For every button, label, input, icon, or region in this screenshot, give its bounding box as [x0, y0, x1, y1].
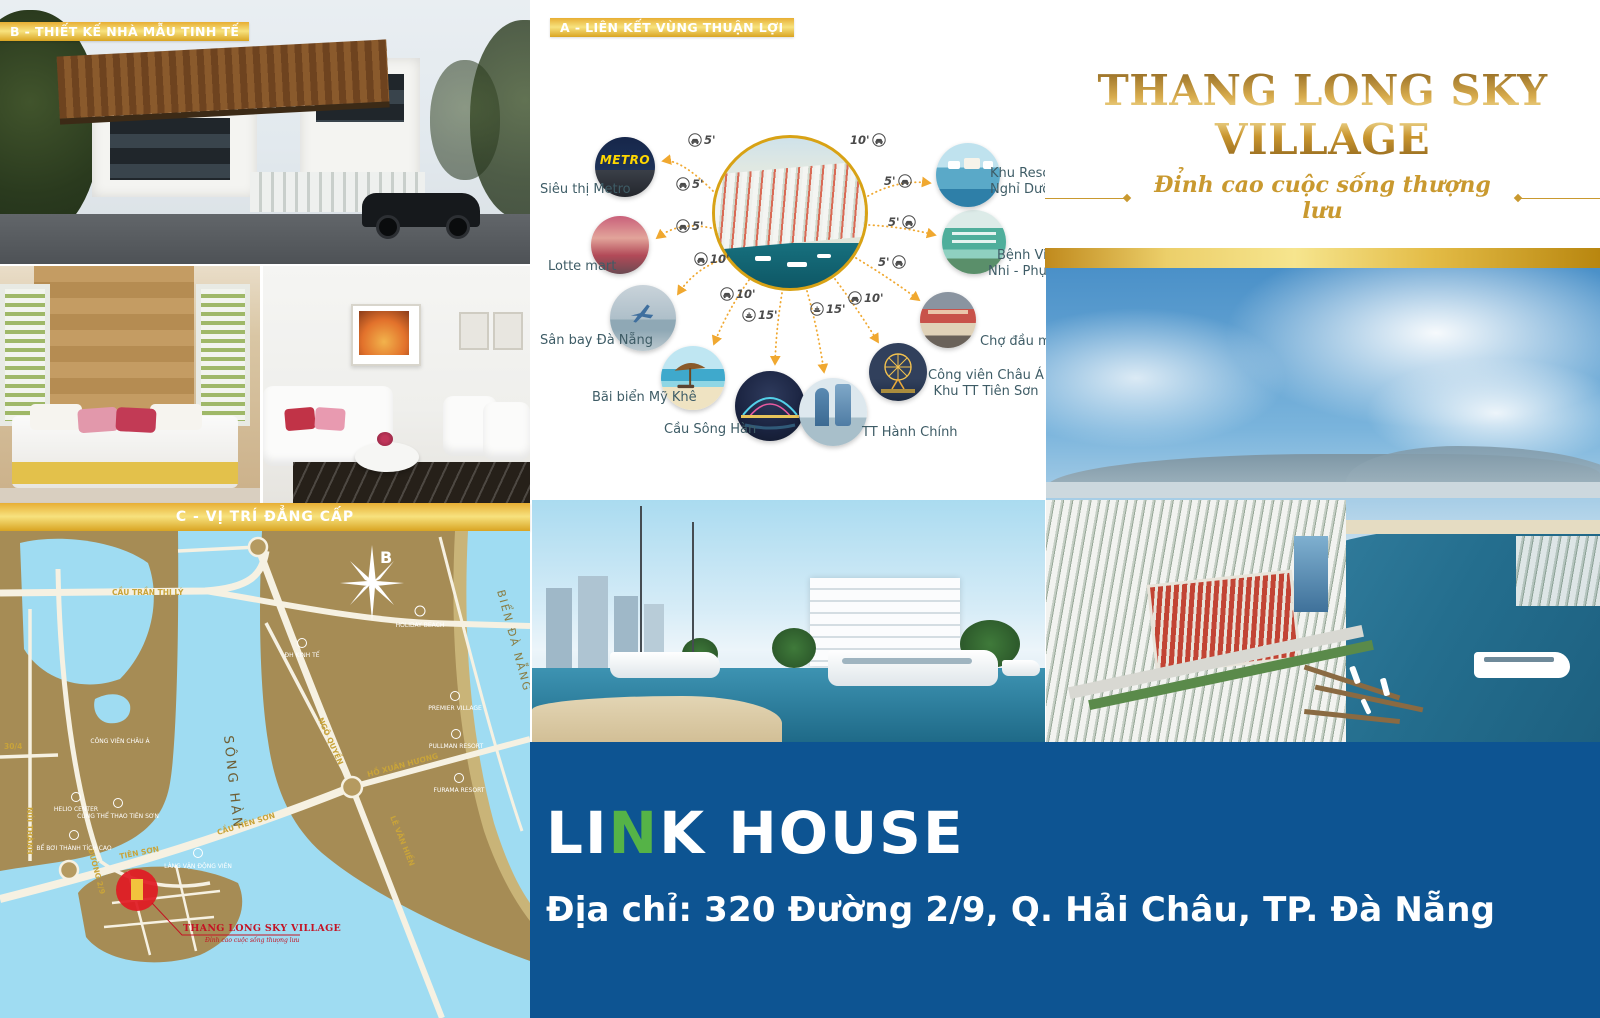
car-icon — [902, 215, 916, 229]
pillow-white-2 — [150, 404, 202, 430]
rug — [293, 462, 530, 503]
map-label-30-4: 30/4 — [4, 742, 22, 751]
dest-metro-label: Siêu thị Metro — [540, 182, 631, 198]
right-bank-rows — [1516, 536, 1600, 606]
section-b-label: B - THIẾT KẾ NHÀ MẪU TINH TẾ — [10, 24, 239, 39]
dest-bridge-label: Cầu Sông Hàn — [664, 422, 756, 438]
beach-sand — [532, 696, 782, 742]
time-bridge-boat: 15' — [742, 308, 778, 322]
time-hospital: 5' — [884, 174, 912, 188]
small-boat — [1002, 660, 1040, 676]
pillow-white — [30, 404, 82, 430]
project-title: THANG LONG SKY VILLAGE — [1045, 66, 1600, 164]
project-marker-tagline: Đỉnh cao cuộc sống thượng lưu — [204, 937, 299, 944]
dest-airport-label: Sân bay Đà Nẵng — [540, 333, 653, 349]
bedroom-photo — [0, 266, 260, 503]
car-icon — [676, 177, 690, 191]
compass-north-label: B — [380, 548, 392, 567]
location-map: B BIỂN ĐÀ NẴNG SÔNG HÀN CẦU TRẦN THỊ LÝ … — [0, 531, 530, 1018]
wall-art — [351, 304, 421, 366]
dest-asia-park-circle — [869, 343, 927, 401]
car-silhouette — [362, 193, 480, 227]
car-icon — [676, 219, 690, 233]
far-city-strip — [1046, 482, 1600, 498]
map-poi-pullman-resort: PULLMAN RESORT — [429, 743, 484, 750]
bed-throw — [12, 462, 238, 484]
car-icon — [694, 252, 708, 266]
time-admin-boat: 15' — [810, 302, 846, 316]
time-beach: 10' — [694, 252, 730, 266]
metro-sign-text: METRO — [595, 153, 655, 167]
dest-market-circle — [920, 292, 976, 348]
section-b-banner: B - THIẾT KẾ NHÀ MẪU TINH TẾ — [0, 22, 249, 41]
boat-icon — [742, 308, 756, 322]
sail-mast — [640, 506, 642, 662]
cruise-ship — [1474, 652, 1570, 678]
glass-tower — [1294, 536, 1328, 612]
car-icon — [848, 291, 862, 305]
dest-admin-label: TT Hành Chính — [862, 425, 958, 441]
time-market: 5' — [888, 215, 916, 229]
dest-admin-center-circle — [799, 378, 867, 446]
coffee-table — [355, 442, 419, 472]
time-asia-park: 5' — [878, 255, 906, 269]
aerial-masterplan-photo — [1046, 268, 1600, 742]
bedroom-floor — [0, 488, 260, 503]
hub-housing-rows — [712, 160, 868, 251]
dest-lotte-label: Lotte mart — [548, 259, 616, 275]
boat-icon — [810, 302, 824, 316]
time-resort: 10' — [850, 133, 886, 147]
brochure-page: B - THIẾT KẾ NHÀ MẪU TINH TẾ C - VỊ TRÍ … — [0, 0, 1600, 1018]
tree-left — [0, 10, 100, 240]
living-room-photo — [263, 266, 530, 503]
project-marker-label: THANG LONG SKY VILLAGE — [183, 923, 341, 934]
armchair-2 — [483, 402, 530, 460]
map-label-tran-thi-ly: CẦU TRẦN THỊ LÝ — [112, 587, 184, 597]
map-poi-dh-kinh-te: ĐH KINH TẾ — [284, 651, 319, 659]
time-lotte: 5' — [676, 177, 704, 191]
section-c-banner: C - VỊ TRÍ ĐẲNG CẤP — [0, 503, 530, 531]
city-tower — [546, 588, 572, 668]
car-icon — [720, 287, 734, 301]
section-a-label: A - LIÊN KẾT VÙNG THUẬN LỢI — [560, 20, 784, 35]
yacht-hull — [828, 650, 998, 686]
cushion-red — [284, 407, 316, 432]
house-glass — [110, 118, 230, 180]
hub-aerial-circle — [712, 135, 868, 291]
project-tagline: Đỉnh cao cuộc sống thượng lưu — [1045, 172, 1600, 224]
connectivity-diagram: A - LIÊN KẾT VÙNG THUẬN LỢI METRO — [530, 0, 1075, 500]
exterior-house-photo: B - THIẾT KẾ NHÀ MẪU TINH TẾ — [0, 0, 530, 264]
tagline-rule-right — [1517, 198, 1600, 199]
time-bridge-car: 10' — [720, 287, 756, 301]
time-metro: 5' — [688, 133, 716, 147]
waterfront-photo — [532, 500, 1045, 742]
map-poi-helio-center: HELIO CENTER — [54, 806, 98, 813]
map-poi-cong-vien-chau-a: CÔNG VIÊN CHÂU Á — [90, 737, 150, 745]
footer: LINK HOUSE Địa chỉ: 320 Đường 2/9, Q. Hả… — [530, 742, 1600, 1018]
wall-art-small-2 — [493, 312, 523, 350]
pillow-red — [115, 407, 156, 433]
bedroom-window-right — [196, 284, 250, 426]
flower-vase — [377, 432, 393, 446]
city-tower — [578, 576, 608, 668]
ferris-wheel-icon — [869, 343, 927, 401]
car-icon — [688, 133, 702, 147]
tagline-rule-left — [1045, 198, 1128, 199]
plane-icon — [622, 301, 662, 327]
logo-green-n: N — [609, 799, 660, 867]
map-poi-be-boi: BỂ BƠI THÀNH TÍCH CAO — [36, 844, 112, 852]
section-a-banner: A - LIÊN KẾT VÙNG THUẬN LỢI — [550, 18, 794, 37]
car-icon — [892, 255, 906, 269]
car-icon — [872, 133, 886, 147]
section-c-label: C - VỊ TRÍ ĐẲNG CẤP — [176, 509, 354, 525]
dest-beach-label: Bãi biển Mỹ Khê — [592, 390, 697, 406]
map-poi-lang-vdv: LÀNG VẬN ĐỘNG VIÊN — [164, 862, 232, 870]
map-poi-premier-village: PREMIER VILLAGE — [428, 705, 482, 712]
tree-mid — [430, 60, 500, 180]
pillow-pink — [77, 407, 119, 434]
brand-block: THANG LONG SKY VILLAGE Đỉnh cao cuộc sốn… — [1045, 0, 1600, 248]
map-label-nui-thanh: NÚI THÀNH — [25, 807, 34, 855]
linkhouse-logo: LINK HOUSE — [546, 804, 965, 862]
car-icon — [898, 174, 912, 188]
dest-asia-park-label: Công viên Châu Á Khu TT Tiên Sơn — [926, 368, 1046, 400]
map-poi-cung-the-thao: CUNG THỂ THAO TIÊN SƠN — [77, 812, 159, 820]
palm-trees — [772, 628, 816, 668]
bedroom-wood-wall — [34, 266, 194, 416]
sailboat-hull — [610, 652, 720, 678]
sail-mast — [692, 522, 694, 662]
wall-art-small — [459, 312, 489, 350]
map-poi-holiday-beach: HOLIDAY BEACH — [396, 622, 445, 629]
footer-address: Địa chỉ: 320 Đường 2/9, Q. Hải Châu, TP.… — [546, 890, 1495, 930]
cushion-pink — [314, 407, 345, 431]
gold-divider-bar — [1045, 248, 1600, 268]
time-airport: 5' — [676, 219, 704, 233]
map-poi-furama-resort: FURAMA RESORT — [434, 787, 485, 794]
time-admin-car: 10' — [848, 291, 884, 305]
